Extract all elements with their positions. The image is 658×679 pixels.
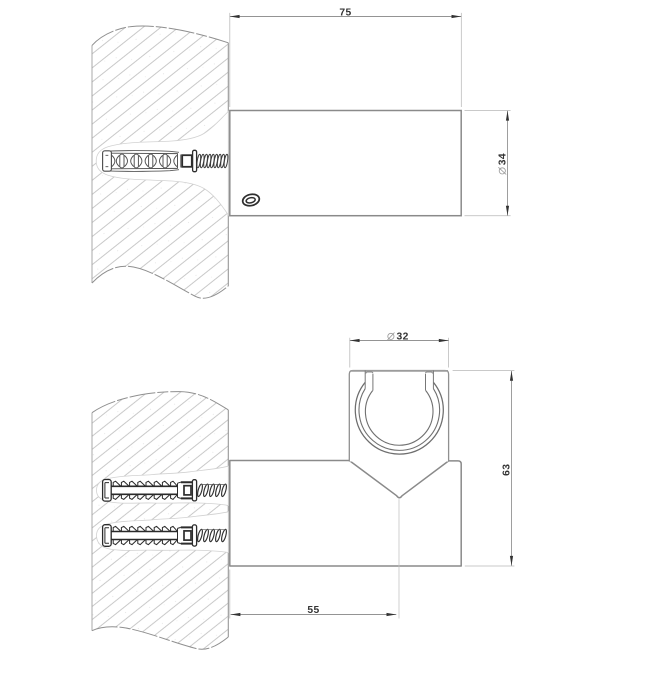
svg-text:75: 75 (339, 7, 351, 18)
svg-text:34: 34 (498, 153, 509, 165)
svg-text:63: 63 (502, 464, 513, 476)
svg-text:32: 32 (396, 332, 408, 343)
svg-text:55: 55 (307, 605, 319, 616)
